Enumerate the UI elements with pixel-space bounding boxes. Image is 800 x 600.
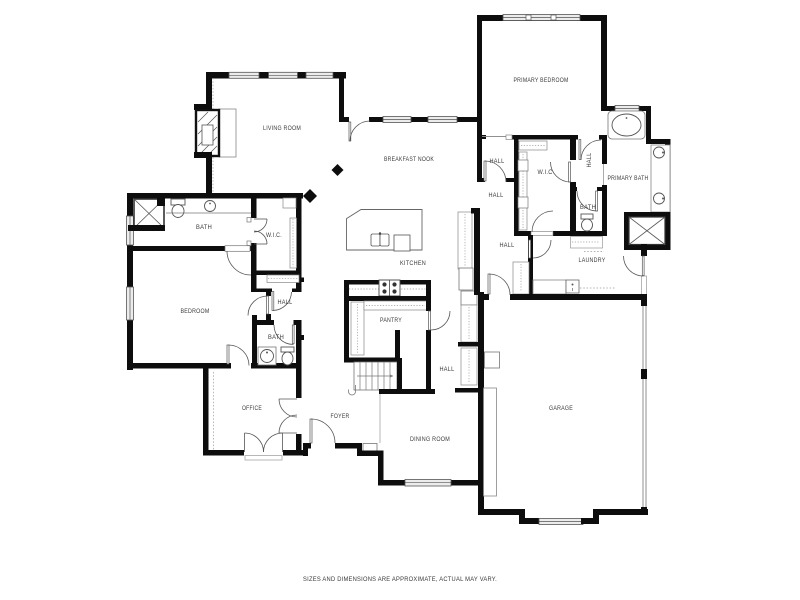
svg-text:PRIMARY BATH: PRIMARY BATH: [608, 175, 649, 182]
svg-text:FOYER: FOYER: [331, 413, 350, 420]
svg-text:HALL: HALL: [489, 192, 504, 199]
svg-text:HALL: HALL: [440, 366, 455, 373]
svg-text:BATH: BATH: [580, 204, 596, 211]
svg-text:PRIMARY BEDROOM: PRIMARY BEDROOM: [514, 77, 569, 84]
svg-text:BATH: BATH: [196, 224, 212, 231]
svg-text:HALL: HALL: [490, 158, 505, 165]
svg-text:GARAGE: GARAGE: [549, 405, 573, 412]
svg-text:W.I.C: W.I.C: [538, 169, 553, 176]
svg-text:BATH: BATH: [268, 334, 284, 341]
svg-text:SIZES AND DIMENSIONS ARE APPRO: SIZES AND DIMENSIONS ARE APPROXIMATE, AC…: [303, 576, 497, 583]
svg-text:OFFICE: OFFICE: [242, 405, 262, 412]
svg-text:LIVING ROOM: LIVING ROOM: [263, 125, 301, 132]
svg-text:HALL: HALL: [500, 242, 515, 249]
svg-text:BEDROOM: BEDROOM: [181, 308, 210, 315]
svg-text:KITCHEN: KITCHEN: [400, 260, 426, 267]
svg-text:DINING ROOM: DINING ROOM: [410, 436, 450, 443]
svg-text:BREAKFAST NOOK: BREAKFAST NOOK: [384, 156, 434, 163]
svg-text:LAUNDRY: LAUNDRY: [579, 257, 606, 264]
svg-text:HALL: HALL: [586, 152, 593, 167]
svg-text:HALL: HALL: [278, 299, 293, 306]
svg-text:PANTRY: PANTRY: [380, 317, 402, 324]
svg-text:W.I.C.: W.I.C.: [266, 232, 282, 239]
